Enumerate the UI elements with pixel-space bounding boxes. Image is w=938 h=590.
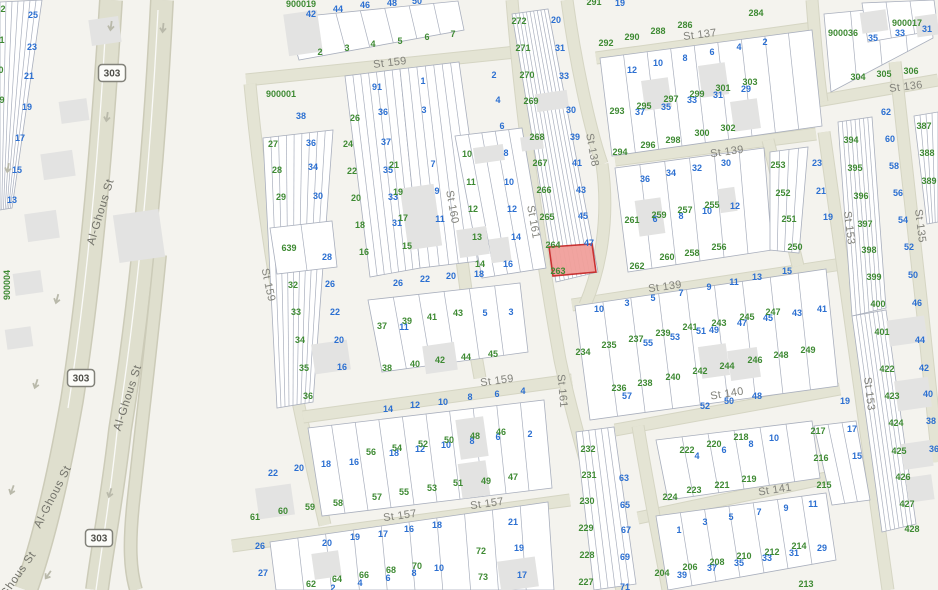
parcel-number: 20 <box>551 15 561 25</box>
parcel-number: 232 <box>580 444 595 454</box>
parcel-number: 243 <box>711 318 726 328</box>
parcel-number: 3 <box>624 298 629 308</box>
parcel-number: 33 <box>762 553 772 563</box>
parcel-number: 35 <box>868 33 878 43</box>
parcel-number: 19 <box>514 543 524 553</box>
parcel-number: 425 <box>891 446 906 456</box>
parcel-number: 17 <box>15 133 25 143</box>
parcel-number: 13 <box>472 232 482 242</box>
parcel-number: 900036 <box>828 28 858 38</box>
parcel-number: 41 <box>572 158 582 168</box>
parcel-number: 8 <box>682 53 687 63</box>
building <box>860 9 889 33</box>
parcel-number: 22 <box>347 166 357 176</box>
parcel-number: 52 <box>700 401 710 411</box>
parcel-number: 28 <box>272 165 282 175</box>
parcel-number: 18 <box>321 459 331 469</box>
parcel-number: 11 <box>808 499 818 509</box>
parcel-number: 47 <box>584 238 594 248</box>
parcel-number: 388 <box>919 148 934 158</box>
parcel-number: 249 <box>800 345 815 355</box>
parcel-number: 262 <box>629 261 644 271</box>
parcel-number: 37 <box>707 563 717 573</box>
parcel-number: 12 <box>410 400 420 410</box>
parcel-number: 21 <box>24 71 34 81</box>
parcel-number: 34 <box>295 335 305 345</box>
parcel-number: 55 <box>643 338 653 348</box>
parcel-number: 401 <box>874 327 889 337</box>
parcel-number: 240 <box>665 372 680 382</box>
parcel-number: 27 <box>258 568 268 578</box>
parcel-number: 398 <box>861 245 876 255</box>
parcel-number: 252 <box>775 188 790 198</box>
parcel-number: 304 <box>850 72 865 82</box>
parcel-number: 301 <box>715 83 730 93</box>
parcel-number: 51 <box>696 326 706 336</box>
parcel-number: 6 <box>499 121 504 131</box>
parcel-number: 36 <box>640 174 650 184</box>
parcel-number: 37 <box>377 321 387 331</box>
parcel-number: 17 <box>847 424 857 434</box>
parcel-number: 20 <box>351 193 361 203</box>
parcel-number: 293 <box>609 106 624 116</box>
parcel-number: 43 <box>576 185 586 195</box>
parcel-number: 20 <box>322 538 332 548</box>
parcel-number: 6 <box>494 389 499 399</box>
parcel-number: 5 <box>482 308 487 318</box>
map-viewport[interactable]: 3033033032523211917151321099000049000194… <box>0 0 938 590</box>
parcel-number: 3 <box>421 105 426 115</box>
parcel-number: 46 <box>496 427 506 437</box>
parcel-number: 18 <box>432 520 442 530</box>
parcel-number: 245 <box>739 312 754 322</box>
parcel-number: 71 <box>620 582 630 590</box>
parcel-number: 37 <box>381 137 391 147</box>
parcel-number: 43 <box>453 308 463 318</box>
parcel-number: 62 <box>881 107 891 117</box>
parcel-number: 264 <box>545 240 560 250</box>
parcel-number: 424 <box>888 418 903 428</box>
parcel-number: 291 <box>586 0 601 7</box>
parcel-number: 303 <box>742 77 757 87</box>
parcel-number: 38 <box>296 111 306 121</box>
parcel-number: 266 <box>536 185 551 195</box>
parcel-number: 65 <box>620 500 630 510</box>
parcel-number: 223 <box>686 485 701 495</box>
building <box>255 484 295 520</box>
parcel-number: 29 <box>817 543 827 553</box>
parcel-number: 20 <box>334 335 344 345</box>
parcel-number: 22 <box>330 307 340 317</box>
parcel-number: 30 <box>566 105 576 115</box>
parcel-number: 42 <box>306 9 316 19</box>
parcel-number: 34 <box>666 168 676 178</box>
parcel-number: 10 <box>653 58 663 68</box>
parcel-number: 296 <box>640 140 655 150</box>
parcel-number: 900019 <box>286 0 316 9</box>
parcel-number: 41 <box>817 304 827 314</box>
parcel-number: 10 <box>434 563 444 573</box>
parcel-number: 12 <box>468 204 478 214</box>
parcel-number: 54 <box>898 215 908 225</box>
building <box>40 150 75 180</box>
parcel-number: 21 <box>389 160 399 170</box>
parcel-number: 56 <box>366 447 376 457</box>
parcel-number: 62 <box>306 579 316 589</box>
parcel-number: 396 <box>853 191 868 201</box>
parcel-number: 21 <box>816 186 826 196</box>
parcel-number: 7 <box>756 507 761 517</box>
parcel-number: 23 <box>27 42 37 52</box>
parcel-number: 50 <box>444 435 454 445</box>
building <box>113 209 165 263</box>
building <box>59 98 90 124</box>
parcel-number: 239 <box>655 328 670 338</box>
parcel-number: 423 <box>884 391 899 401</box>
parcel-number: 271 <box>515 43 530 53</box>
parcel-number: 2 <box>491 70 496 80</box>
parcel-number: 47 <box>508 472 518 482</box>
parcel-number: 218 <box>733 432 748 442</box>
parcel-number: 206 <box>682 562 697 572</box>
parcel-number: 46 <box>360 0 370 10</box>
parcel-number: 12 <box>730 201 740 211</box>
parcel-number: 50 <box>412 0 422 6</box>
parcel-number: 4 <box>520 386 525 396</box>
parcel-number: 15 <box>402 241 412 251</box>
parcel-number: 288 <box>650 26 665 36</box>
parcel-number: 16 <box>404 524 414 534</box>
parcel-number: 15 <box>782 266 792 276</box>
parcel-number: 2 <box>317 47 322 57</box>
parcel-number: 9 <box>706 282 711 292</box>
parcel-number: 7 <box>430 159 435 169</box>
parcel-number: 45 <box>578 211 588 221</box>
parcel-number: 26 <box>325 279 335 289</box>
parcel-number: 270 <box>519 70 534 80</box>
parcel-number: 60 <box>278 506 288 516</box>
parcel-number: 1 <box>0 35 5 45</box>
parcel-number: 31 <box>922 24 932 34</box>
building <box>24 210 60 242</box>
parcel-number: 229 <box>578 523 593 533</box>
parcel-number: 8 <box>748 439 753 449</box>
parcel-number: 284 <box>748 8 763 18</box>
parcel-number: 237 <box>628 334 643 344</box>
parcel-number: 13 <box>752 272 762 282</box>
parcel-number: 265 <box>539 212 554 222</box>
parcel-number: 22 <box>268 468 278 478</box>
parcel-number: 14 <box>383 404 393 414</box>
parcel-number: 54 <box>392 443 402 453</box>
parcel-number: 44 <box>461 352 471 362</box>
parcel-number: 255 <box>704 200 719 210</box>
parcel-number: 53 <box>427 483 437 493</box>
parcel-number: 9 <box>0 95 5 105</box>
building <box>5 326 34 349</box>
parcel-number: 399 <box>866 272 881 282</box>
parcel-number: 216 <box>813 453 828 463</box>
parcel-number: 19 <box>840 396 850 406</box>
parcel-number: 7 <box>450 29 455 39</box>
parcel-number: 395 <box>847 163 862 173</box>
route-shield-number: 303 <box>104 69 121 80</box>
parcel-number: 295 <box>636 101 651 111</box>
parcel-number: 45 <box>488 349 498 359</box>
parcel-number: 263 <box>550 266 565 276</box>
parcel-number: 17 <box>378 529 388 539</box>
parcel-number: 900004 <box>2 270 12 300</box>
parcel-number: 58 <box>333 498 343 508</box>
parcel-number: 15 <box>12 165 22 175</box>
parcel-number: 1 <box>676 525 681 535</box>
parcel-number: 224 <box>662 492 677 502</box>
parcel-number: 397 <box>857 219 872 229</box>
parcel-number: 20 <box>294 463 304 473</box>
parcel-number: 10 <box>438 397 448 407</box>
parcel-number: 27 <box>268 139 278 149</box>
parcel-number: 10 <box>769 433 779 443</box>
parcel-number: 44 <box>333 4 343 14</box>
parcel-number: 72 <box>476 546 486 556</box>
parcel-number: 227 <box>578 577 593 587</box>
parcel-number: 256 <box>711 242 726 252</box>
parcel-number: 387 <box>916 121 931 131</box>
parcel-number: 42 <box>919 363 929 373</box>
parcel-number: 4 <box>694 451 699 461</box>
parcel-number: 30 <box>721 158 731 168</box>
parcel-number: 18 <box>355 220 365 230</box>
parcel-number: 228 <box>579 550 594 560</box>
parcel-number: 57 <box>372 492 382 502</box>
parcel-number: 10 <box>504 177 514 187</box>
parcel-number: 13 <box>7 195 17 205</box>
parcel-number: 50 <box>908 270 918 280</box>
parcel-number: 259 <box>651 210 666 220</box>
parcel-number: 215 <box>816 480 831 490</box>
parcel-number: 26 <box>350 113 360 123</box>
parcel-number: 59 <box>305 502 315 512</box>
parcel-number: 29 <box>276 192 286 202</box>
parcel-number: 10 <box>594 304 604 314</box>
parcel-number: 19 <box>393 187 403 197</box>
parcel-number: 292 <box>598 38 613 48</box>
map-canvas[interactable]: 3033033032523211917151321099000049000194… <box>0 0 938 590</box>
parcel-number: 0 <box>0 65 4 75</box>
parcel-number: 221 <box>714 480 729 490</box>
parcel-number: 4 <box>370 39 375 49</box>
parcel-number: 306 <box>903 66 918 76</box>
parcel-number: 60 <box>885 134 895 144</box>
parcel-number: 302 <box>720 123 735 133</box>
parcel-number: 6 <box>709 47 714 57</box>
parcel-number: 46 <box>912 298 922 308</box>
parcel-number: 22 <box>420 274 430 284</box>
parcel-number: 57 <box>622 391 632 401</box>
parcel-number: 2 <box>0 4 5 14</box>
parcel-number: 253 <box>770 160 785 170</box>
parcel-number: 19 <box>350 532 360 542</box>
parcel-number: 426 <box>895 472 910 482</box>
parcel-number: 299 <box>689 89 704 99</box>
parcel-number: 12 <box>507 204 517 214</box>
parcel-number: 11 <box>729 277 739 287</box>
parcel-number: 400 <box>870 299 885 309</box>
parcel-number: 36 <box>929 444 938 454</box>
parcel-number: 52 <box>904 242 914 252</box>
parcel-number: 17 <box>398 213 408 223</box>
parcel-number: 2 <box>762 37 767 47</box>
parcel-number: 53 <box>670 332 680 342</box>
parcel-number: 238 <box>637 378 652 388</box>
parcel-number: 40 <box>923 389 933 399</box>
parcel-number: 422 <box>879 364 894 374</box>
parcel-number: 8 <box>503 148 508 158</box>
parcel-number: 15 <box>852 451 862 461</box>
parcel-number: 39 <box>402 316 412 326</box>
parcel-number: 36 <box>303 391 313 401</box>
parcel-number: 16 <box>359 247 369 257</box>
parcel-number: 11 <box>435 214 445 224</box>
parcel-number: 35 <box>734 558 744 568</box>
parcel-number: 3 <box>702 517 707 527</box>
parcel-number: 24 <box>343 139 353 149</box>
building <box>456 226 490 258</box>
parcel-number: 900001 <box>266 89 296 99</box>
parcel-block <box>270 221 337 274</box>
parcel-number: 298 <box>665 135 680 145</box>
parcel-number: 30 <box>313 191 323 201</box>
parcel-number: 297 <box>663 94 678 104</box>
parcel-number: 48 <box>387 0 397 8</box>
parcel-number: 20 <box>446 271 456 281</box>
parcel-number: 25 <box>28 10 38 20</box>
parcel-number: 9 <box>434 186 439 196</box>
building <box>88 16 121 46</box>
parcel-number: 16 <box>337 362 347 372</box>
parcel-number: 41 <box>427 312 437 322</box>
parcel-number: 38 <box>382 363 392 373</box>
parcel-number: 42 <box>435 355 445 365</box>
parcel-number: 16 <box>349 457 359 467</box>
parcel-number: 73 <box>478 572 488 582</box>
parcel-number: 248 <box>773 350 788 360</box>
parcel-number: 305 <box>876 69 891 79</box>
parcel-number: 231 <box>581 470 596 480</box>
parcel-number: 40 <box>410 359 420 369</box>
parcel-number: 6 <box>721 445 726 455</box>
parcel-number: 247 <box>765 307 780 317</box>
parcel-number: 16 <box>503 259 513 269</box>
parcel-number: 8 <box>467 392 472 402</box>
parcel-number: 260 <box>659 252 674 262</box>
parcel-number: 44 <box>915 335 925 345</box>
parcel-number: 242 <box>692 366 707 376</box>
parcel-number: 17 <box>517 570 527 580</box>
parcel-number: 48 <box>752 391 762 401</box>
parcel-number: 234 <box>575 347 590 357</box>
parcel-number: 900017 <box>892 18 922 28</box>
parcel-number: 269 <box>523 96 538 106</box>
parcel-number: 2 <box>330 583 335 590</box>
parcel-number: 52 <box>418 439 428 449</box>
parcel-number: 61 <box>250 512 260 522</box>
parcel-number: 261 <box>624 215 639 225</box>
parcel-number: 8 <box>411 568 416 578</box>
parcel-number: 639 <box>281 243 296 253</box>
parcel-number: 9 <box>783 503 788 513</box>
building <box>13 270 44 296</box>
parcel-number: 2 <box>527 429 532 439</box>
parcel-number: 394 <box>843 135 858 145</box>
parcel-number: 49 <box>481 476 491 486</box>
parcel-number: 258 <box>684 248 699 258</box>
parcel-number: 213 <box>798 579 813 589</box>
parcel-number: 300 <box>694 128 709 138</box>
parcel-number: 19 <box>823 212 833 222</box>
parcel-number: 219 <box>741 474 756 484</box>
parcel-number: 23 <box>812 158 822 168</box>
parcel-number: 31 <box>789 548 799 558</box>
parcel-number: 1 <box>420 76 425 86</box>
parcel-number: 19 <box>615 0 625 8</box>
parcel-number: 38 <box>926 416 936 426</box>
parcel-number: 19 <box>22 102 32 112</box>
parcel-number: 204 <box>654 568 669 578</box>
route-shield-number: 303 <box>73 374 90 385</box>
parcel-number: 69 <box>620 552 630 562</box>
parcel-number: 33 <box>559 71 569 81</box>
parcel-number: 21 <box>508 517 518 527</box>
parcel-number: 32 <box>288 280 298 290</box>
parcel-number: 6 <box>424 32 429 42</box>
parcel-number: 230 <box>579 496 594 506</box>
parcel-number: 10 <box>462 149 472 159</box>
parcel-number: 35 <box>299 363 309 373</box>
parcel-number: 3 <box>508 307 513 317</box>
parcel-number: 91 <box>372 82 382 92</box>
parcel-number: 267 <box>532 158 547 168</box>
parcel-number: 5 <box>728 512 733 522</box>
parcel-number: 257 <box>677 205 692 215</box>
parcel-number: 33 <box>895 28 905 38</box>
parcel-number: 14 <box>475 259 485 269</box>
parcel-number: 48 <box>470 431 480 441</box>
parcel-number: 14 <box>511 232 521 242</box>
parcel-number: 427 <box>899 499 914 509</box>
parcel-number: 217 <box>810 426 825 436</box>
parcel-number: 36 <box>378 107 388 117</box>
parcel-number: 246 <box>747 355 762 365</box>
parcel-number: 63 <box>619 473 629 483</box>
parcel-number: 67 <box>621 525 631 535</box>
parcel-number: 286 <box>677 20 692 30</box>
parcel-number: 39 <box>570 132 580 142</box>
parcel-number: 222 <box>679 445 694 455</box>
parcel-number: 55 <box>399 487 409 497</box>
parcel-number: 36 <box>306 138 316 148</box>
parcel-number: 290 <box>624 32 639 42</box>
parcel-number: 58 <box>889 161 899 171</box>
parcel-number: 26 <box>393 278 403 288</box>
parcel-number: 26 <box>255 541 265 551</box>
parcel-number: 6 <box>385 573 390 583</box>
parcel-number: 235 <box>601 340 616 350</box>
parcel-number: 43 <box>792 308 802 318</box>
parcel-number: 5 <box>397 36 402 46</box>
parcel-number: 12 <box>627 65 637 75</box>
parcel-number: 244 <box>719 361 734 371</box>
